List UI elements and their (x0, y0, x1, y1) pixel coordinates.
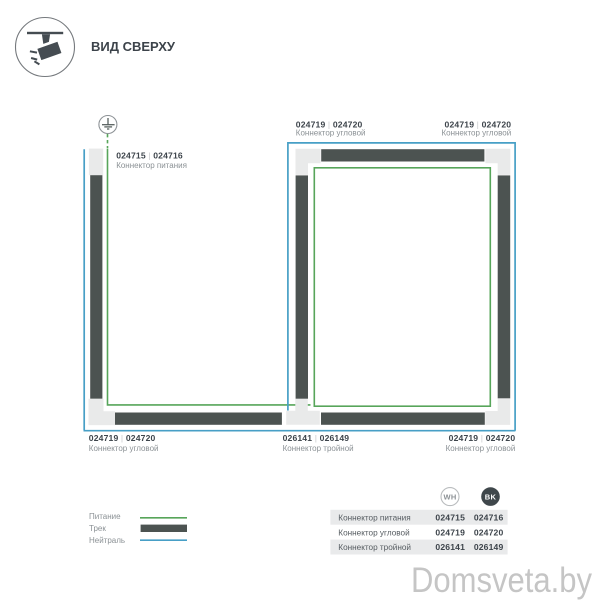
svg-text:BK: BK (485, 493, 497, 502)
svg-text:024719 | 024720: 024719 | 024720 (89, 433, 156, 443)
svg-text:Коннектор тройной: Коннектор тройной (338, 543, 411, 552)
svg-text:024719 | 024720: 024719 | 024720 (449, 433, 516, 443)
svg-text:Domsveta.by: Domsveta.by (411, 561, 592, 600)
svg-text:024716: 024716 (474, 512, 504, 522)
svg-text:Коннектор угловой: Коннектор угловой (338, 528, 409, 537)
svg-text:Коннектор тройной: Коннектор тройной (283, 444, 354, 453)
svg-text:Коннектор питания: Коннектор питания (116, 161, 187, 170)
svg-text:Коннектор угловой: Коннектор угловой (296, 128, 366, 137)
svg-text:Коннектор угловой: Коннектор угловой (441, 128, 511, 137)
svg-text:Коннектор угловой: Коннектор угловой (89, 444, 159, 453)
svg-text:024715: 024715 (435, 512, 465, 522)
svg-text:024720: 024720 (474, 527, 504, 537)
svg-text:WH: WH (443, 493, 456, 502)
svg-text:Коннектор угловой: Коннектор угловой (446, 444, 516, 453)
svg-text:024715 | 024716: 024715 | 024716 (116, 151, 183, 161)
svg-text:Коннектор питания: Коннектор питания (338, 513, 410, 522)
svg-text:Питание: Питание (89, 512, 121, 521)
svg-text:024719: 024719 (435, 527, 465, 537)
svg-text:026141 | 026149: 026141 | 026149 (283, 433, 350, 443)
svg-text:ВИД СВЕРХУ: ВИД СВЕРХУ (91, 39, 176, 54)
svg-text:026141: 026141 (435, 542, 465, 552)
svg-text:Трек: Трек (89, 524, 106, 533)
svg-text:026149: 026149 (474, 542, 504, 552)
svg-text:Нейтраль: Нейтраль (89, 536, 125, 545)
